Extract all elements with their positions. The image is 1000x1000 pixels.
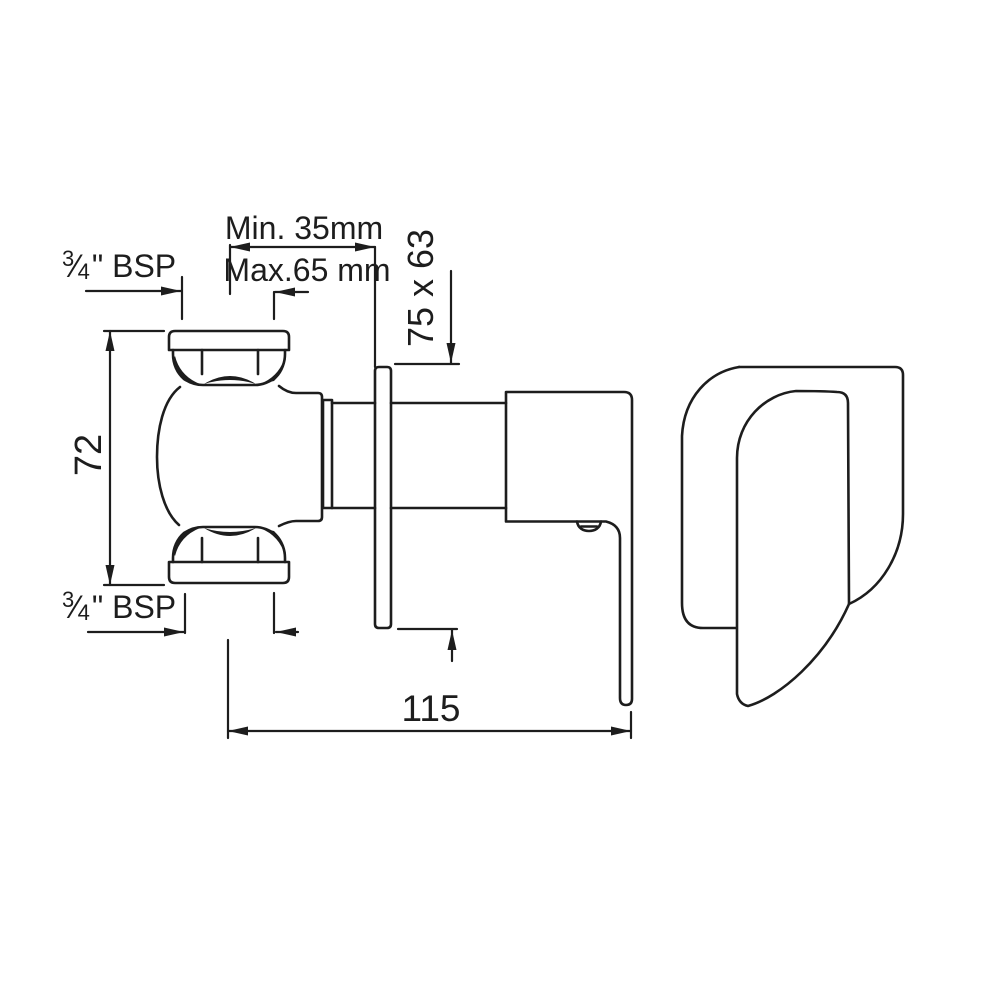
arrow-72-up	[106, 331, 115, 351]
dimension-arrowheads	[106, 243, 632, 736]
label-thread-size-bottom: 3⁄4" BSP	[62, 587, 176, 626]
arrow-72-down	[106, 565, 115, 585]
drawing-linework	[0, 0, 1000, 1000]
label-plate-size: 75 x 63	[401, 208, 441, 368]
top-nut-shade-center	[204, 376, 256, 384]
handle-hub-and-lever	[506, 392, 632, 705]
label-max-depth: Max.65 mm	[207, 252, 407, 289]
arrow-75-up	[448, 630, 457, 650]
valve-body-right-outline	[279, 386, 322, 526]
bottom-nut-shade-right	[260, 528, 286, 556]
fraction-denominator: 4	[78, 600, 90, 625]
arrow-bsp-top-right	[161, 287, 181, 296]
technical-drawing-canvas: Min. 35mm Max.65 mm 3⁄4" BSP 3⁄4" BSP 72…	[0, 0, 1000, 1000]
arrow-115-left	[228, 727, 248, 736]
top-nut-shade-right	[260, 356, 286, 384]
arrow-115-right	[611, 727, 631, 736]
arrow-lower-ref-left	[276, 628, 296, 637]
thread-standard: " BSP	[92, 589, 176, 625]
top-nut-shade-left	[174, 356, 200, 384]
front-plate-left-outline	[682, 367, 739, 628]
top-cap	[169, 331, 289, 350]
valve-body-left-outline	[157, 387, 180, 525]
bottom-nut-shade-left	[174, 528, 200, 556]
fraction-denominator: 4	[78, 259, 90, 284]
front-view	[682, 367, 903, 706]
label-body-height: 72	[69, 385, 109, 525]
front-lever-handle	[737, 391, 849, 706]
bottom-cap	[169, 562, 289, 583]
stem-ring	[323, 400, 332, 508]
label-overall-depth: 115	[371, 688, 491, 730]
wall-plate	[375, 367, 391, 628]
bottom-nut-shade-center	[204, 528, 256, 536]
label-thread-size-top: 3⁄4" BSP	[62, 246, 176, 285]
dimension-lines	[86, 245, 631, 738]
arrow-75-down	[447, 343, 456, 363]
thread-standard: " BSP	[92, 248, 176, 284]
arrow-bsp-bottom-right	[164, 628, 184, 637]
label-min-depth: Min. 35mm	[204, 210, 404, 247]
